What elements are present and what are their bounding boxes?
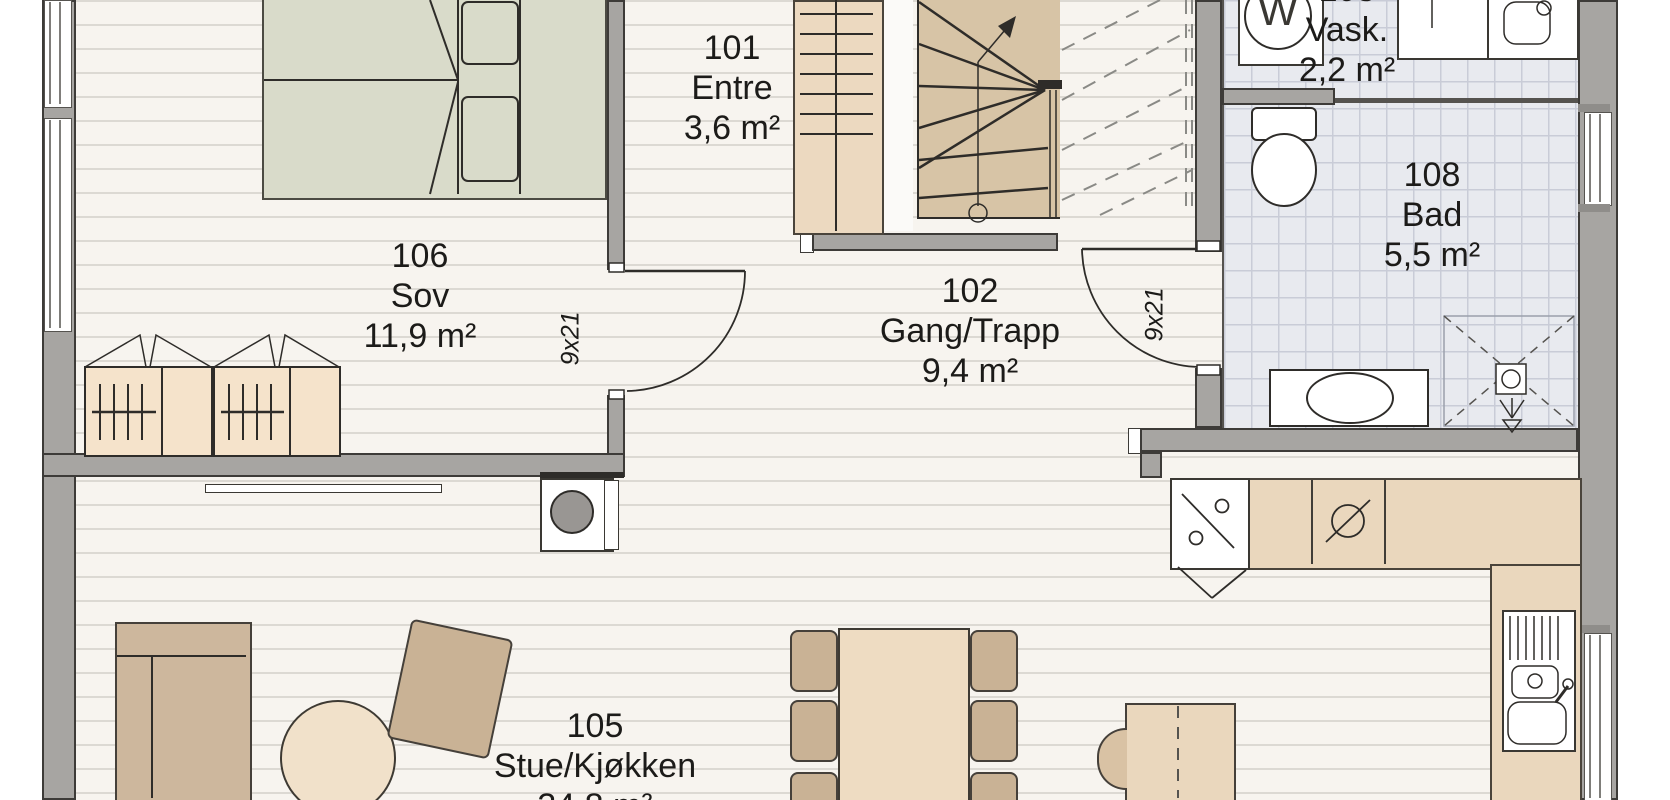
window-left-mid xyxy=(44,118,72,332)
room-number: 101 xyxy=(632,28,832,68)
wall-sov-stue xyxy=(42,453,625,477)
room-number: 106 xyxy=(320,236,520,276)
open-door-leaf xyxy=(604,480,619,550)
wall-entre-left xyxy=(607,0,625,270)
wall-below-stairs xyxy=(812,233,1058,251)
room-area: 11,9 m² xyxy=(320,316,520,356)
room-label-bad: 108 Bad 5,5 m² xyxy=(1332,155,1532,275)
vask-counter-edge xyxy=(1335,98,1578,103)
wall-stub-sov-door xyxy=(607,395,625,455)
window-bath xyxy=(1584,112,1612,206)
room-label-entre: 101 Entre 3,6 m² xyxy=(632,28,832,148)
window-kitchen xyxy=(1584,633,1612,800)
room-label-stue: 105 Stue/Kjøkken 34,8 m² xyxy=(445,706,745,800)
room-name: Bad xyxy=(1332,195,1532,235)
washer-letter: W xyxy=(1258,0,1298,32)
door-size-label-sov: 9x21 xyxy=(557,304,586,366)
room-label-sov: 106 Sov 11,9 m² xyxy=(320,236,520,356)
tv-bench xyxy=(205,484,442,493)
staircase xyxy=(917,0,1060,219)
wood-stove xyxy=(540,478,614,552)
wall-vask-bad-divider xyxy=(1222,88,1335,105)
wall-bath-left-upper xyxy=(1195,0,1222,252)
room-area: 5,5 m² xyxy=(1332,235,1532,275)
room-label-gang: 102 Gang/Trapp 9,4 m² xyxy=(845,271,1095,391)
room-number: 108 xyxy=(1332,155,1532,195)
wall-gap xyxy=(880,0,913,231)
dining-chair xyxy=(790,772,838,800)
room-name: Gang/Trapp xyxy=(845,311,1095,351)
room-number: 105 xyxy=(445,706,745,746)
dining-chair xyxy=(790,700,838,762)
window-sill xyxy=(1578,204,1610,212)
room-name: Entre xyxy=(632,68,832,108)
room-area: 9,4 m² xyxy=(845,351,1095,391)
dining-chair xyxy=(790,630,838,692)
room-area: 3,6 m² xyxy=(632,108,832,148)
room-area: 34,8 m² xyxy=(445,786,745,800)
door-size-label-bad: 9x21 xyxy=(1141,280,1170,342)
room-area: 2,2 m² xyxy=(1247,50,1447,90)
sofa xyxy=(115,622,252,800)
wall-kitchen-stub xyxy=(1140,452,1162,478)
wall-bath-left-lower xyxy=(1195,368,1222,428)
cooktop-unit xyxy=(1170,478,1250,570)
window-sill xyxy=(1578,104,1610,112)
dining-chair xyxy=(970,700,1018,762)
dining-chair xyxy=(970,772,1018,800)
room-number: 102 xyxy=(845,271,1095,311)
laundry-sink-counter xyxy=(1487,0,1579,60)
floor-plan: 106 Sov 11,9 m² 101 Entre 3,6 m² 102 Gan… xyxy=(0,0,1670,800)
dining-chair xyxy=(970,630,1018,692)
wall-bath-bottom xyxy=(1140,428,1578,452)
kitchen-sink-unit xyxy=(1502,610,1576,752)
bed xyxy=(262,0,607,200)
dining-table xyxy=(838,628,970,800)
room-name: Stue/Kjøkken xyxy=(445,746,745,786)
room-name: Sov xyxy=(320,276,520,316)
window-sill xyxy=(1578,625,1610,633)
kitchen-island-table xyxy=(1125,703,1236,800)
window-left-top xyxy=(44,0,72,108)
